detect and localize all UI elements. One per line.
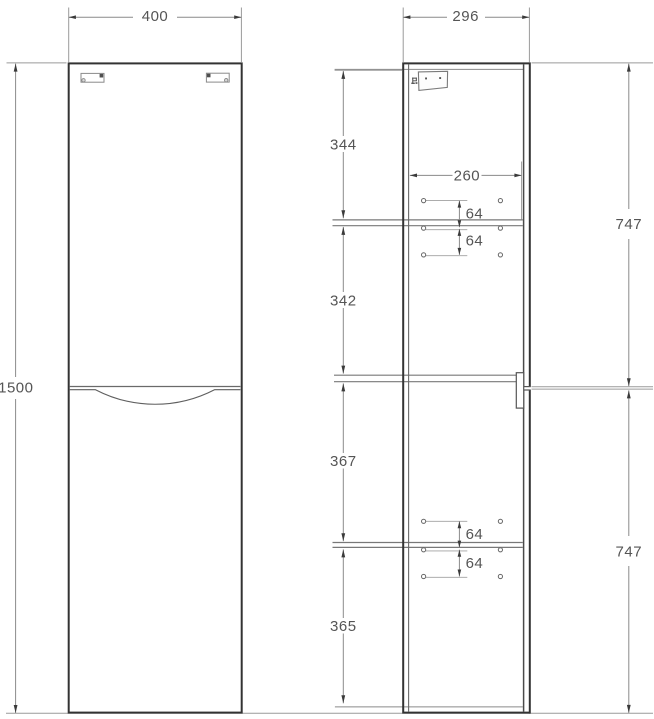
- svg-text:64: 64: [466, 555, 484, 572]
- svg-text:344: 344: [330, 136, 357, 153]
- svg-text:64: 64: [466, 526, 484, 543]
- svg-text:260: 260: [454, 168, 481, 185]
- svg-text:1500: 1500: [0, 379, 33, 396]
- svg-text:342: 342: [330, 292, 357, 309]
- svg-text:64: 64: [466, 232, 484, 249]
- svg-text:367: 367: [330, 453, 357, 470]
- svg-text:747: 747: [616, 544, 643, 561]
- svg-text:296: 296: [452, 8, 479, 25]
- svg-text:64: 64: [466, 205, 484, 222]
- svg-text:365: 365: [330, 618, 357, 635]
- svg-text:400: 400: [142, 8, 169, 25]
- svg-text:747: 747: [616, 216, 643, 233]
